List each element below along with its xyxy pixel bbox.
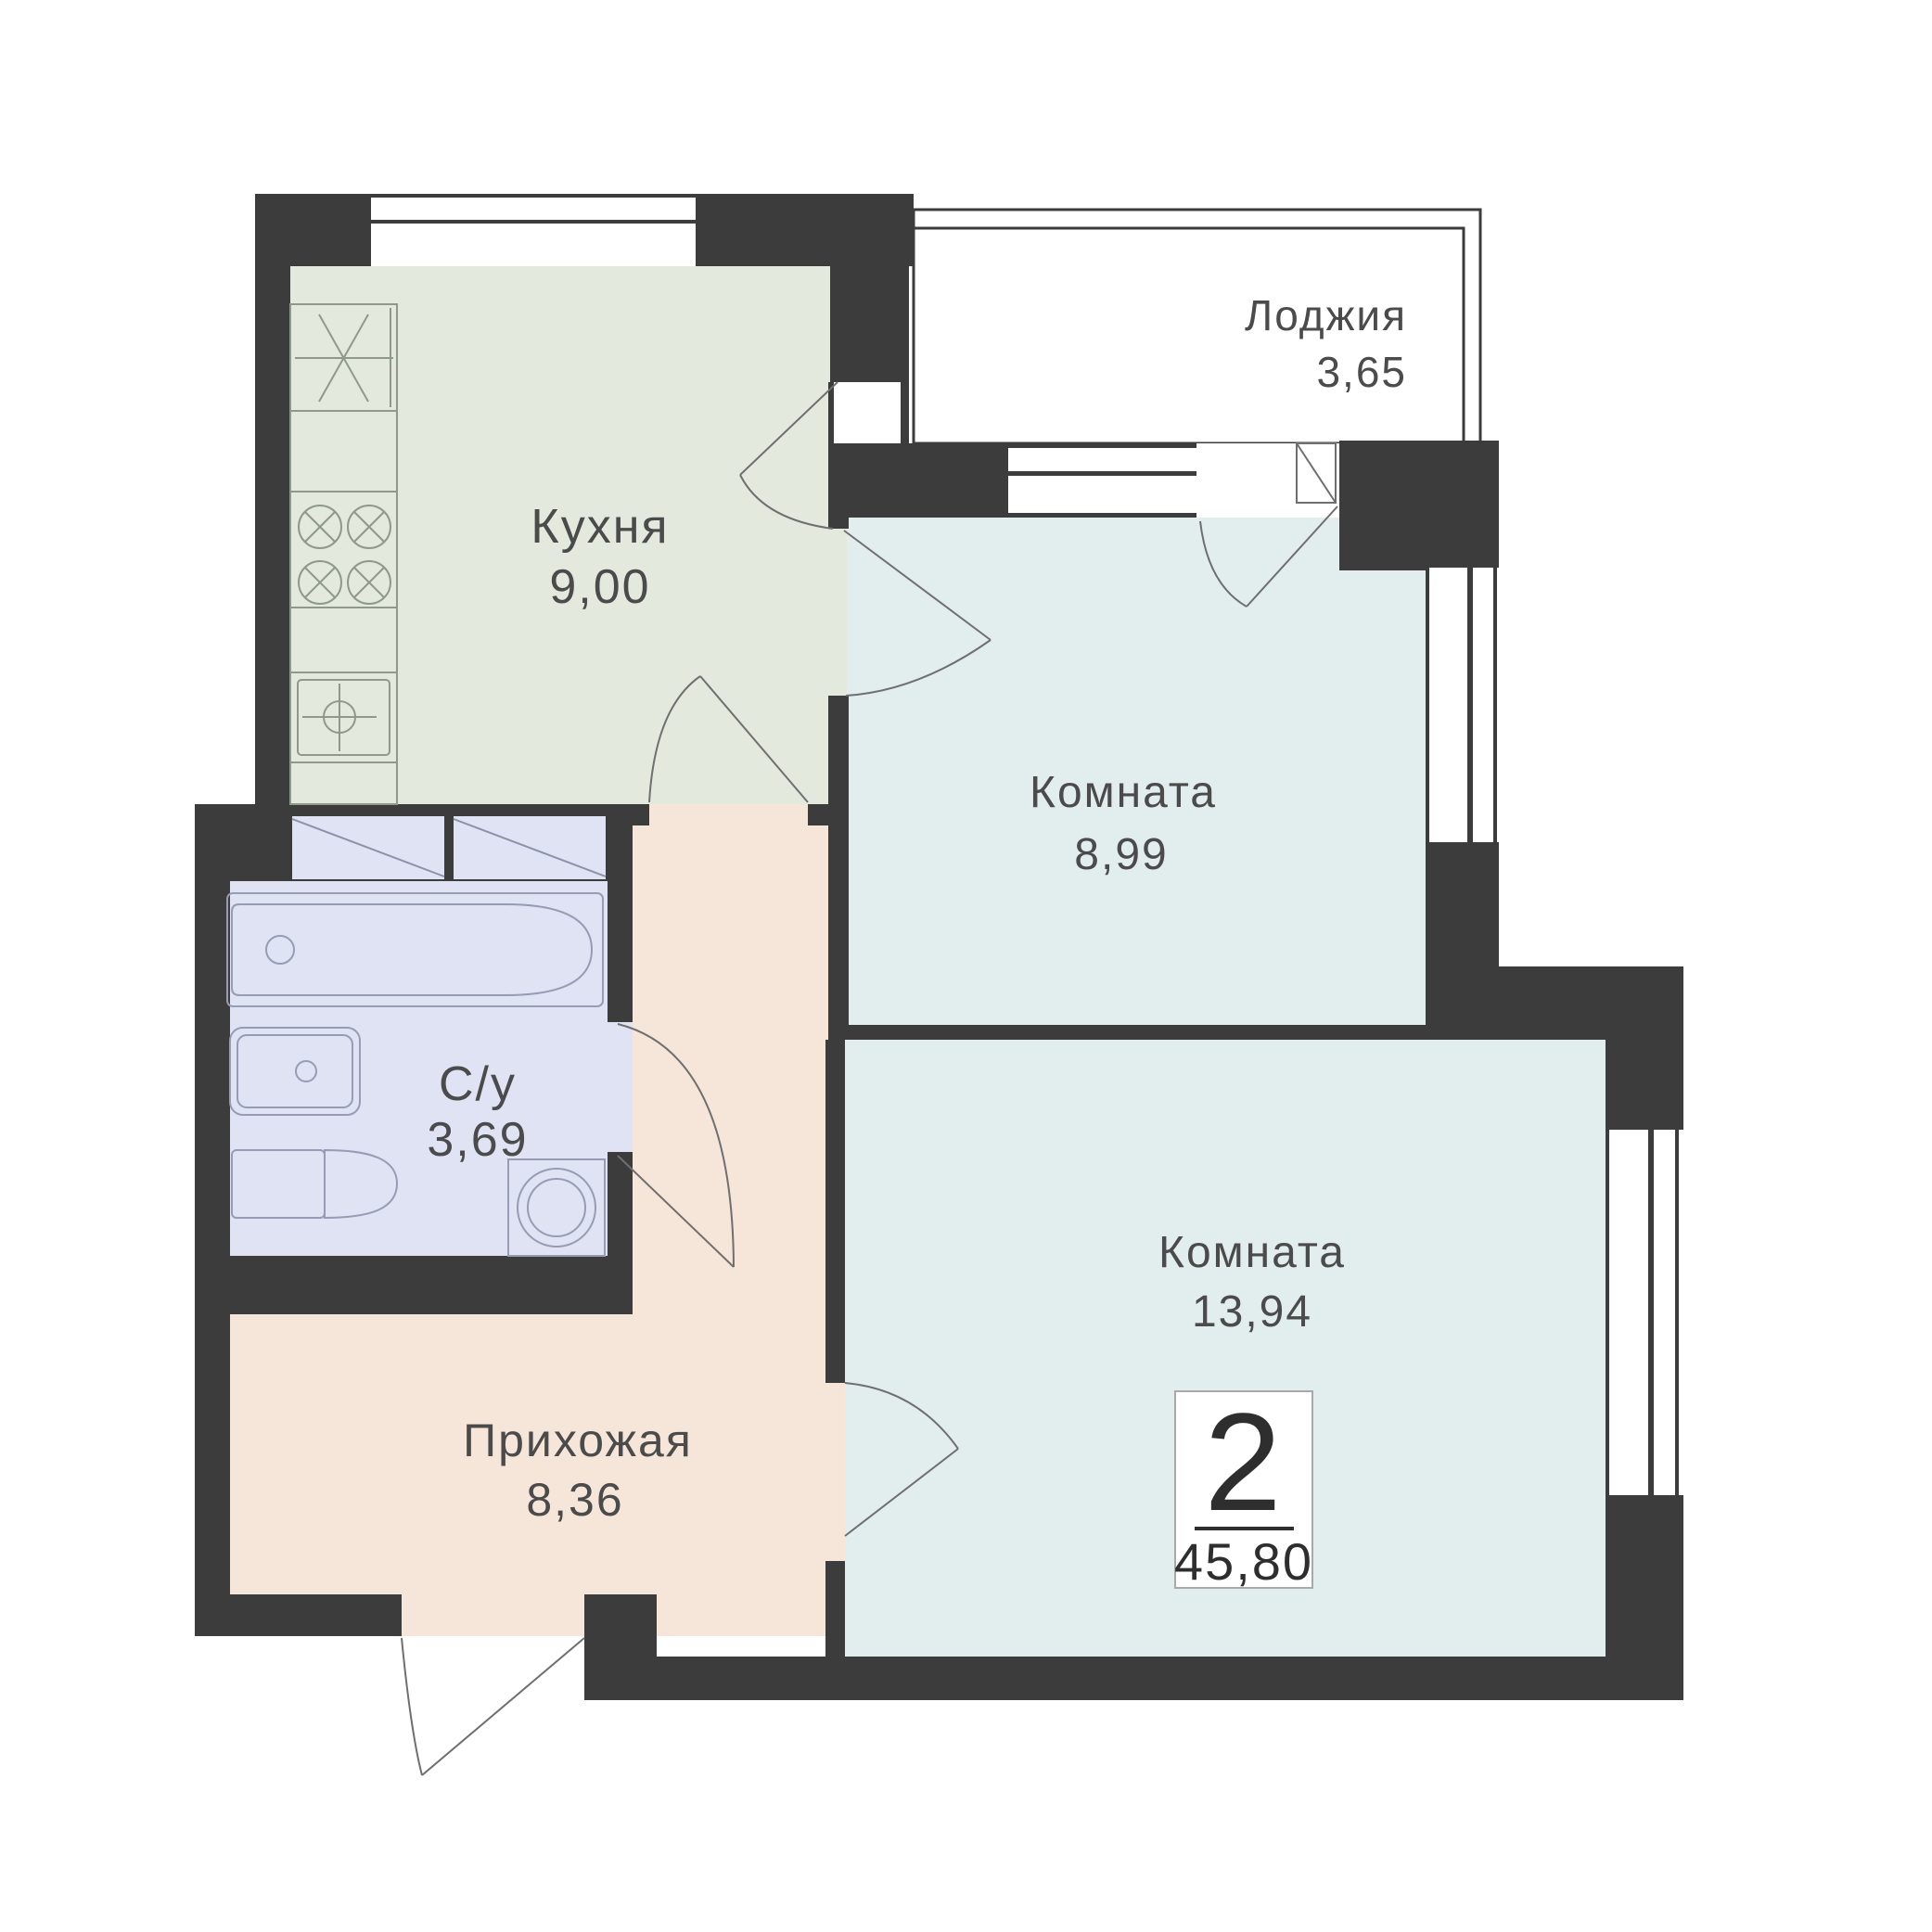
kitchen-window — [371, 194, 696, 266]
kitchen-area: 9,00 — [549, 560, 650, 614]
wall-room2-right-lower — [1606, 1495, 1683, 1700]
wall-room2-bottom — [657, 1657, 1683, 1700]
kitchen-door-threshold — [649, 804, 808, 825]
room1-top-window — [1008, 443, 1196, 518]
room2-area: 13,94 — [1192, 1287, 1312, 1337]
room2-door-threshold — [825, 1383, 845, 1561]
wall-room1-left-lower — [828, 696, 849, 1025]
wall-bottom-middle-block — [584, 1594, 657, 1700]
bathroom-door-threshold — [608, 1022, 633, 1152]
loggia-label: Лоджия — [1245, 291, 1407, 339]
badge-total-area: 45,80 — [1174, 1532, 1313, 1591]
wall-kitchen-bottom-right — [808, 804, 830, 825]
room1-door-threshold — [828, 529, 849, 696]
room1-side-window — [1426, 568, 1499, 842]
badge-rooms-count: 2 — [1204, 1384, 1283, 1540]
wall-balcony-jamb-right — [901, 382, 909, 443]
entrance-door-swing-icon — [402, 1638, 584, 1775]
wall-left-upper — [255, 194, 290, 812]
room1-balcony-door-opening — [1196, 443, 1339, 518]
room2-label: Комната — [1158, 1228, 1346, 1277]
wall-rooms-divider — [828, 1025, 1606, 1040]
hallway-label: Прихожая — [463, 1414, 693, 1466]
wall-room1-top — [830, 443, 1008, 518]
wall-room2-left-lower — [825, 1561, 845, 1657]
wall-top-left — [255, 194, 371, 266]
wall-room2-left-upper — [825, 1040, 845, 1383]
wall-room1-top-corner — [1339, 441, 1499, 570]
kitchen-label: Кухня — [531, 500, 669, 554]
floor-plan-svg: Кухня 9,00 Лоджия 3,65 Комната 8,99 С/у … — [0, 0, 1932, 1932]
room1-area: 8,99 — [1074, 830, 1168, 879]
wall-kitchen-loggia-pier — [830, 266, 909, 382]
apartment-badge: 2 45,80 — [1174, 1384, 1313, 1591]
wall-bath-bottom — [195, 1256, 633, 1314]
room2-side-window — [1606, 1130, 1683, 1495]
wall-top-right — [696, 194, 914, 266]
wall-room2-top-extension — [1498, 966, 1683, 1040]
floor-plan: Кухня 9,00 Лоджия 3,65 Комната 8,99 С/у … — [0, 0, 1932, 1932]
bathroom-label: С/у — [439, 1057, 517, 1111]
wall-room1-right-lower — [1426, 839, 1499, 1025]
bathroom-area: 3,69 — [427, 1113, 528, 1167]
wall-bath-right-upper — [608, 825, 633, 1022]
hallway-area: 8,36 — [526, 1474, 623, 1526]
room1-label: Комната — [1030, 768, 1217, 817]
loggia-area: 3,65 — [1316, 348, 1407, 396]
wall-room2-right-upper — [1606, 1040, 1683, 1130]
wall-bottom-left — [195, 1594, 402, 1636]
wall-left-lower — [195, 804, 230, 1636]
